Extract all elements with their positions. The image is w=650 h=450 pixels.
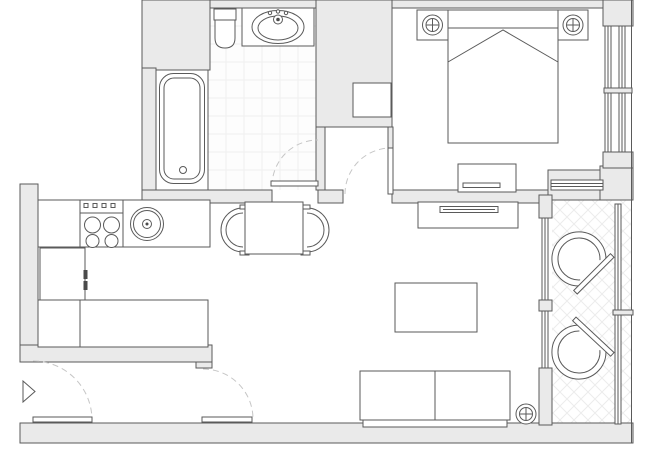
- bathtub-inner: [164, 78, 200, 179]
- bedroom-door-arc: [345, 148, 391, 194]
- faucet-dot-mid: [276, 10, 279, 13]
- floor-plan-drawing: [0, 0, 650, 450]
- bedroom-right-window: [604, 26, 632, 152]
- chair-left-outer: [221, 208, 243, 252]
- lamp-symbol-left: [423, 15, 443, 35]
- toilet-bowl: [215, 20, 235, 48]
- counter-top: [38, 200, 210, 247]
- burner: [105, 235, 118, 248]
- stove-knob: [93, 204, 97, 208]
- hall-door-right-leaf: [202, 417, 252, 422]
- window-tick: [613, 310, 633, 315]
- bed-headboard: [448, 10, 558, 28]
- wall-corner-mass: [600, 166, 633, 200]
- wall-divider-top: [539, 195, 552, 218]
- hall-door-left-arc: [33, 361, 92, 420]
- bathroom-door-leaf: [271, 181, 318, 186]
- chair-right-outer: [307, 208, 329, 252]
- bedroom-door-leaf: [388, 148, 393, 194]
- hall-door-left-leaf: [33, 417, 92, 422]
- wall-left: [20, 184, 38, 362]
- bedroom-balcony-window: [551, 180, 603, 190]
- fridge-handle-bottom: [84, 281, 88, 290]
- stove-knob: [102, 204, 106, 208]
- burner: [86, 235, 99, 248]
- wall-window-bottom-cap: [603, 152, 633, 168]
- wall-divider-bottom: [539, 368, 552, 425]
- burner: [85, 217, 101, 233]
- faucet-knob-dot: [276, 18, 280, 22]
- fridge-handle-top: [84, 270, 88, 279]
- bed: [448, 28, 558, 143]
- wall-bath-hall-right: [318, 190, 343, 203]
- stove-knob: [84, 204, 88, 208]
- refrigerator: [40, 248, 85, 300]
- faucet-dot-right: [284, 11, 287, 14]
- wall-bath-mass: [142, 0, 210, 70]
- coffee-table: [395, 283, 477, 332]
- bathtub-drain: [180, 167, 187, 174]
- hall-door-right-arc: [203, 369, 253, 419]
- toilet-tank: [214, 9, 236, 20]
- burner: [104, 217, 120, 233]
- kitchen: [38, 200, 210, 347]
- wall-kitchen-nib: [196, 362, 212, 368]
- dresser-handle: [463, 183, 500, 188]
- wall-kitchen-bottom: [20, 345, 212, 362]
- lamp-symbol-right: [563, 15, 583, 35]
- faucet-dot-left: [268, 11, 271, 14]
- dining: [221, 202, 329, 255]
- wall-bottom: [20, 423, 633, 443]
- shaft-box: [353, 83, 391, 117]
- living-balcony-glazing: [542, 218, 548, 368]
- sofa-front-edge: [363, 420, 507, 427]
- counter-lower: [38, 300, 208, 347]
- tv-cabinet: [418, 202, 518, 228]
- window-transom: [604, 88, 632, 93]
- wall-divider-mid: [539, 300, 552, 311]
- dining-table: [245, 202, 303, 254]
- stove-knob: [111, 204, 115, 208]
- entrance-marker-triangle: [23, 381, 35, 402]
- floor-plan-stage: [0, 0, 650, 450]
- wall-bedroom-door-jamb: [388, 127, 393, 148]
- wall-tub-left: [142, 68, 156, 190]
- living-lamp-symbol: [516, 404, 536, 424]
- kitchen-sink-dot: [146, 223, 149, 226]
- wall-window-top-cap: [603, 0, 633, 26]
- living-room: [360, 202, 536, 427]
